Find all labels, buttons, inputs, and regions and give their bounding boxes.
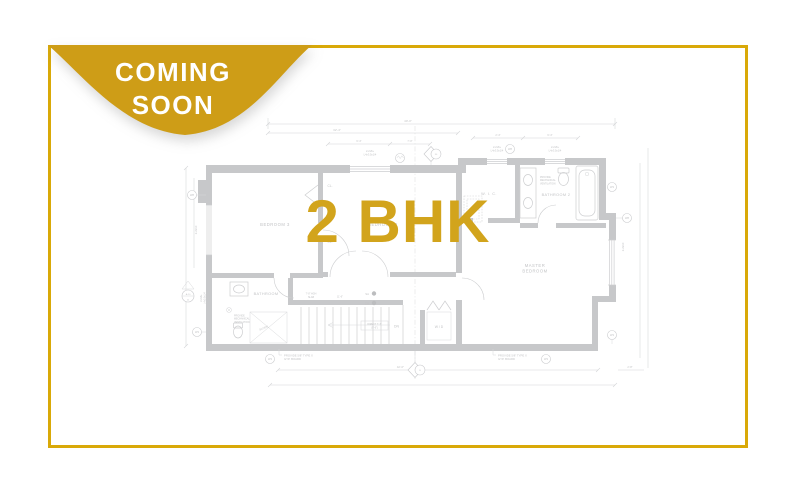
- dim-label: 2'-4": [495, 133, 500, 137]
- washer-dryer-label: W / D: [435, 325, 444, 329]
- elevation-tag: A-10: [186, 293, 191, 296]
- wall-tag: W3: [268, 357, 272, 361]
- header-note: L4x3.5x1/4: [491, 149, 504, 153]
- gyp-note: GYP. BOARD: [284, 357, 301, 361]
- stair-note: (9'-6"): [371, 327, 378, 330]
- master-bedroom-label: BEDROOM: [522, 269, 547, 274]
- window-tag: W8: [190, 193, 194, 197]
- header-note: 2-2x8+: [551, 145, 559, 149]
- badge-line-coming: COMING: [48, 56, 298, 89]
- tag-bubbles: W8 W8 W8 W3 W3 W3 W3 W3 30 B A-10 A: [182, 145, 632, 378]
- badge-line-soon: SOON: [48, 89, 298, 122]
- joist-label: 2-2x10: [621, 242, 625, 251]
- header-notes: 2-2x8+ L4x3.5x1/4 2-2x8+ L4x3.5x1/4 2-2x…: [364, 145, 562, 157]
- dim-label: 6'-4": [547, 133, 552, 137]
- dim-label: 42'-0": [397, 365, 404, 369]
- slab-note: SLAB: [308, 296, 315, 299]
- wall-tag: W3: [610, 333, 614, 337]
- slope-label: SLOPE: [259, 325, 269, 332]
- gyp-note: GYP. BOARD: [498, 357, 515, 361]
- stair-note: DIRECT 7'-7": [367, 323, 381, 326]
- wall-tag: W3: [610, 185, 614, 189]
- header-note: 2-2x8+: [366, 149, 374, 153]
- plan-type-label: 2 BHK: [296, 192, 500, 252]
- joist-label: 2-2x10: [194, 225, 198, 234]
- dim-label: 6'-4": [356, 139, 361, 143]
- wall-tag: W3: [544, 357, 548, 361]
- header-note: L4x3.5x1/4: [364, 153, 377, 157]
- header-note: 2-2x8+: [493, 145, 501, 149]
- dim-label: 7'-0": [407, 139, 412, 143]
- bedroom3-label: BEDROOM 3: [260, 222, 290, 227]
- window-tag: W8: [508, 147, 512, 151]
- bathroom2-label: BATHROOM 2: [542, 193, 571, 197]
- stairs-down-label: DN: [394, 325, 399, 329]
- master-bedroom-label: MASTER: [525, 263, 545, 268]
- dim-label: 40'-0": [404, 119, 412, 123]
- header-note: L4x3.5x1/4: [549, 149, 562, 153]
- bathroom-label: BATHROOM: [254, 292, 279, 296]
- dim-label: 32'-4": [333, 128, 341, 132]
- badge-text: COMING SOON: [48, 45, 298, 122]
- vent-note: VENTILATION: [540, 182, 556, 185]
- dim-label: 2'-8": [627, 365, 632, 369]
- page-canvas: 40'-0" 32'-4" 6'-4" 7'-0" 2'-4" 6'-4" 42…: [0, 0, 800, 500]
- smoke-alarm-label: SA: [365, 292, 369, 296]
- stair-dim: 11'-6": [337, 296, 343, 299]
- bathroom-fixtures: SLOPE PROVIDE MECHANICAL VENTILATION BAT…: [227, 278, 295, 343]
- window-tag: W8: [625, 216, 629, 220]
- vent-note: VENTILATION: [234, 321, 250, 324]
- wall-tag: W3: [195, 330, 199, 334]
